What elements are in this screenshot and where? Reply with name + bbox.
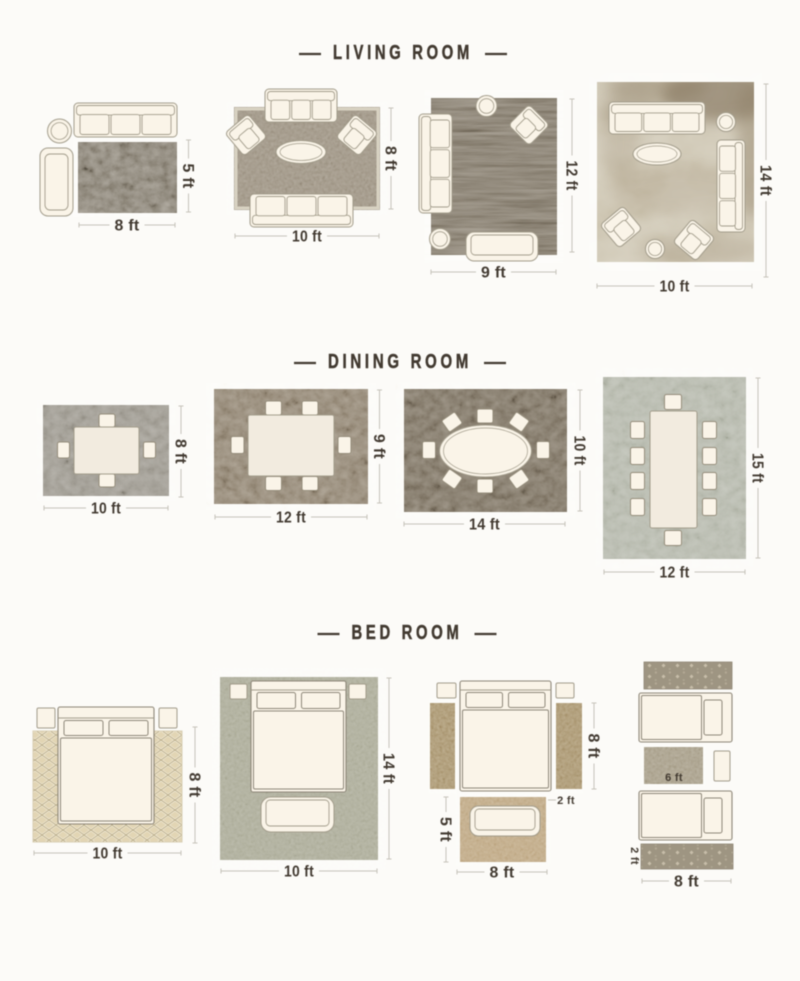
svg-text:9 ft: 9 ft <box>370 434 387 459</box>
svg-text:LIVING ROOM: LIVING ROOM <box>333 42 473 64</box>
svg-text:14 ft: 14 ft <box>757 165 774 196</box>
svg-text:14 ft: 14 ft <box>469 516 500 533</box>
svg-text:2 ft: 2 ft <box>628 847 640 865</box>
svg-text:12 ft: 12 ft <box>276 509 306 526</box>
svg-text:14 ft: 14 ft <box>380 753 397 784</box>
svg-text:10 ft: 10 ft <box>292 228 322 245</box>
svg-text:8 ft: 8 ft <box>186 773 203 798</box>
svg-text:10 ft: 10 ft <box>91 500 121 517</box>
svg-text:8 ft: 8 ft <box>490 864 515 881</box>
svg-text:DINING ROOM: DINING ROOM <box>328 351 472 373</box>
svg-text:6 ft: 6 ft <box>665 772 683 784</box>
svg-text:5 ft: 5 ft <box>437 817 454 842</box>
svg-text:9 ft: 9 ft <box>481 264 506 281</box>
svg-text:15 ft: 15 ft <box>749 453 766 483</box>
svg-text:10 ft: 10 ft <box>660 278 690 295</box>
svg-text:8 ft: 8 ft <box>382 146 399 171</box>
svg-text:8 ft: 8 ft <box>585 734 602 759</box>
svg-text:5 ft: 5 ft <box>179 164 196 189</box>
svg-text:2 ft: 2 ft <box>557 795 575 807</box>
svg-text:10 ft: 10 ft <box>571 436 588 466</box>
svg-text:BED ROOM: BED ROOM <box>352 622 463 644</box>
svg-text:8 ft: 8 ft <box>115 217 140 234</box>
svg-text:10 ft: 10 ft <box>284 863 314 880</box>
svg-text:8 ft: 8 ft <box>674 873 699 890</box>
svg-text:12 ft: 12 ft <box>660 564 690 581</box>
svg-text:10 ft: 10 ft <box>93 845 123 862</box>
svg-text:8 ft: 8 ft <box>172 439 189 464</box>
svg-text:12 ft: 12 ft <box>563 161 580 191</box>
